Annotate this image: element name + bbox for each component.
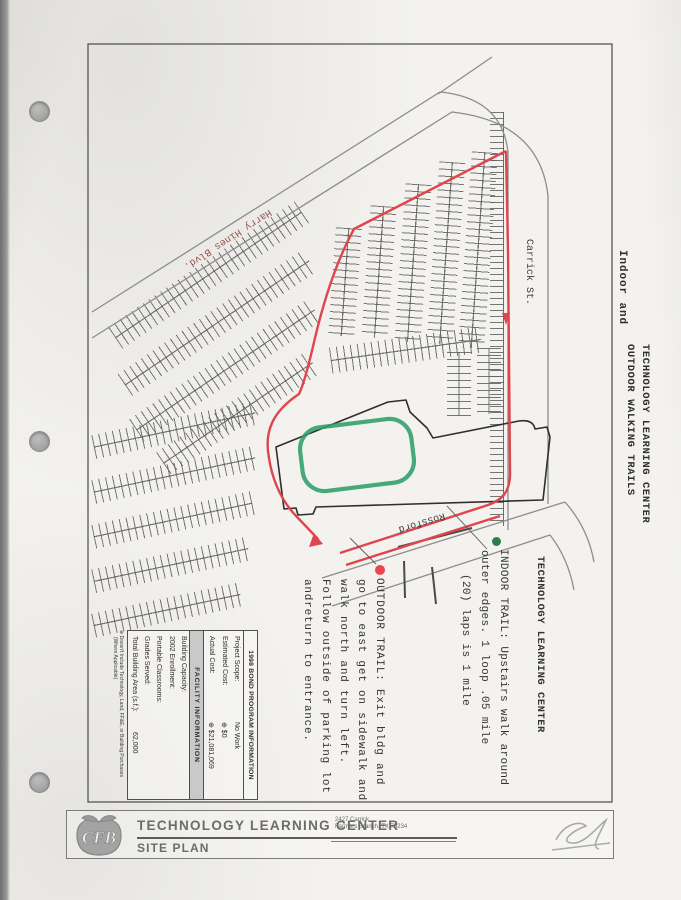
trail-note-line: go to east get on sidewalk and <box>352 564 370 799</box>
parking-row <box>395 183 432 342</box>
table-row: Grades Served: <box>141 631 153 799</box>
title-rule <box>137 837 457 839</box>
parking-row <box>361 205 396 338</box>
trail-note-line: (20) laps is 1 mile <box>455 536 474 786</box>
indoor-track-loop <box>298 416 417 493</box>
bond-program-header: 1998 BOND PROGRAM INFORMATION <box>243 631 257 799</box>
parking-row <box>328 227 361 337</box>
punch-hole <box>29 101 50 122</box>
table-row: Total Building Area (s.f.): 62,000 <box>129 631 141 799</box>
site-label: TECHNOLOGY LEARNING CENTER <box>534 556 546 746</box>
facility-information-header: FACILITY INFORMATION <box>189 631 204 799</box>
table-row: Actual Cost: ⊕ $21,081,069 <box>204 631 217 799</box>
punch-hole <box>29 772 50 793</box>
margin-note: Indoor and <box>616 250 628 340</box>
table-row: Project Scope: No Work <box>231 631 243 799</box>
table-footnote: ⊕ Doesn't Include Technology, Land, FF&E… <box>113 630 125 800</box>
road-label-carrick: Carrick St. <box>523 239 534 303</box>
title-block-subtitle: SITE PLAN <box>137 841 210 855</box>
trail-note-line: INDOOR TRAIL: Upstairs walk around <box>493 536 512 786</box>
scanned-site-plan-page: Harry Hines Blvd. Carrick St. Rossford T… <box>0 0 681 900</box>
margin-title-line1: TECHNOLOGY LEARNING CENTER <box>638 344 653 544</box>
margin-title-line2: OUTDOOR WALKING TRAILS <box>623 344 638 544</box>
table-row: 2002 Enrollment: <box>165 631 177 799</box>
road-label-rossford: Rossford <box>372 509 446 541</box>
building-outline <box>276 400 550 515</box>
trail-note-line: outer edges. 1 loop .05 mile <box>474 536 493 786</box>
trail-note-line: OUTDOOR TRAIL: Exit bldg and <box>370 564 388 799</box>
title-block: CFB TECHNOLOGY LEARNING CENTER SITE PLAN… <box>66 810 614 859</box>
logo-text: CFB <box>82 828 116 847</box>
table-row: Estimated Cost: ⊕ $0 <box>218 631 231 799</box>
table-row: Portable Classrooms: <box>153 631 165 799</box>
parking-row <box>490 112 504 526</box>
table-row: Building Capacity: <box>177 631 189 799</box>
cfb-apple-logo: CFB <box>73 813 125 857</box>
address-line1: 2427 Carrick <box>335 817 407 824</box>
punch-hole <box>29 431 50 452</box>
address-rule <box>331 841 456 842</box>
outdoor-trail-note: OUTDOOR TRAIL: Exit bldg and go to east … <box>298 564 388 799</box>
margin-title: TECHNOLOGY LEARNING CENTER OUTDOOR WALKI… <box>623 344 652 544</box>
trail-note-line: andreturn to entrance. <box>298 564 316 799</box>
parking-row <box>447 352 471 416</box>
scanner-edge-shadow <box>0 0 10 900</box>
address: 2427 Carrick Farmers Branch, TX 75234 <box>335 817 407 831</box>
indoor-trail-note: INDOOR TRAIL: Upstairs walk around outer… <box>455 536 512 786</box>
address-line2: Farmers Branch, TX 75234 <box>335 824 407 831</box>
trail-note-line: walk north and turn left. <box>334 564 352 799</box>
facility-information-table: 1998 BOND PROGRAM INFORMATION Project Sc… <box>113 630 259 800</box>
trail-note-line: Follow outside of parking lot <box>316 564 334 799</box>
trail-arrowhead <box>309 533 323 547</box>
